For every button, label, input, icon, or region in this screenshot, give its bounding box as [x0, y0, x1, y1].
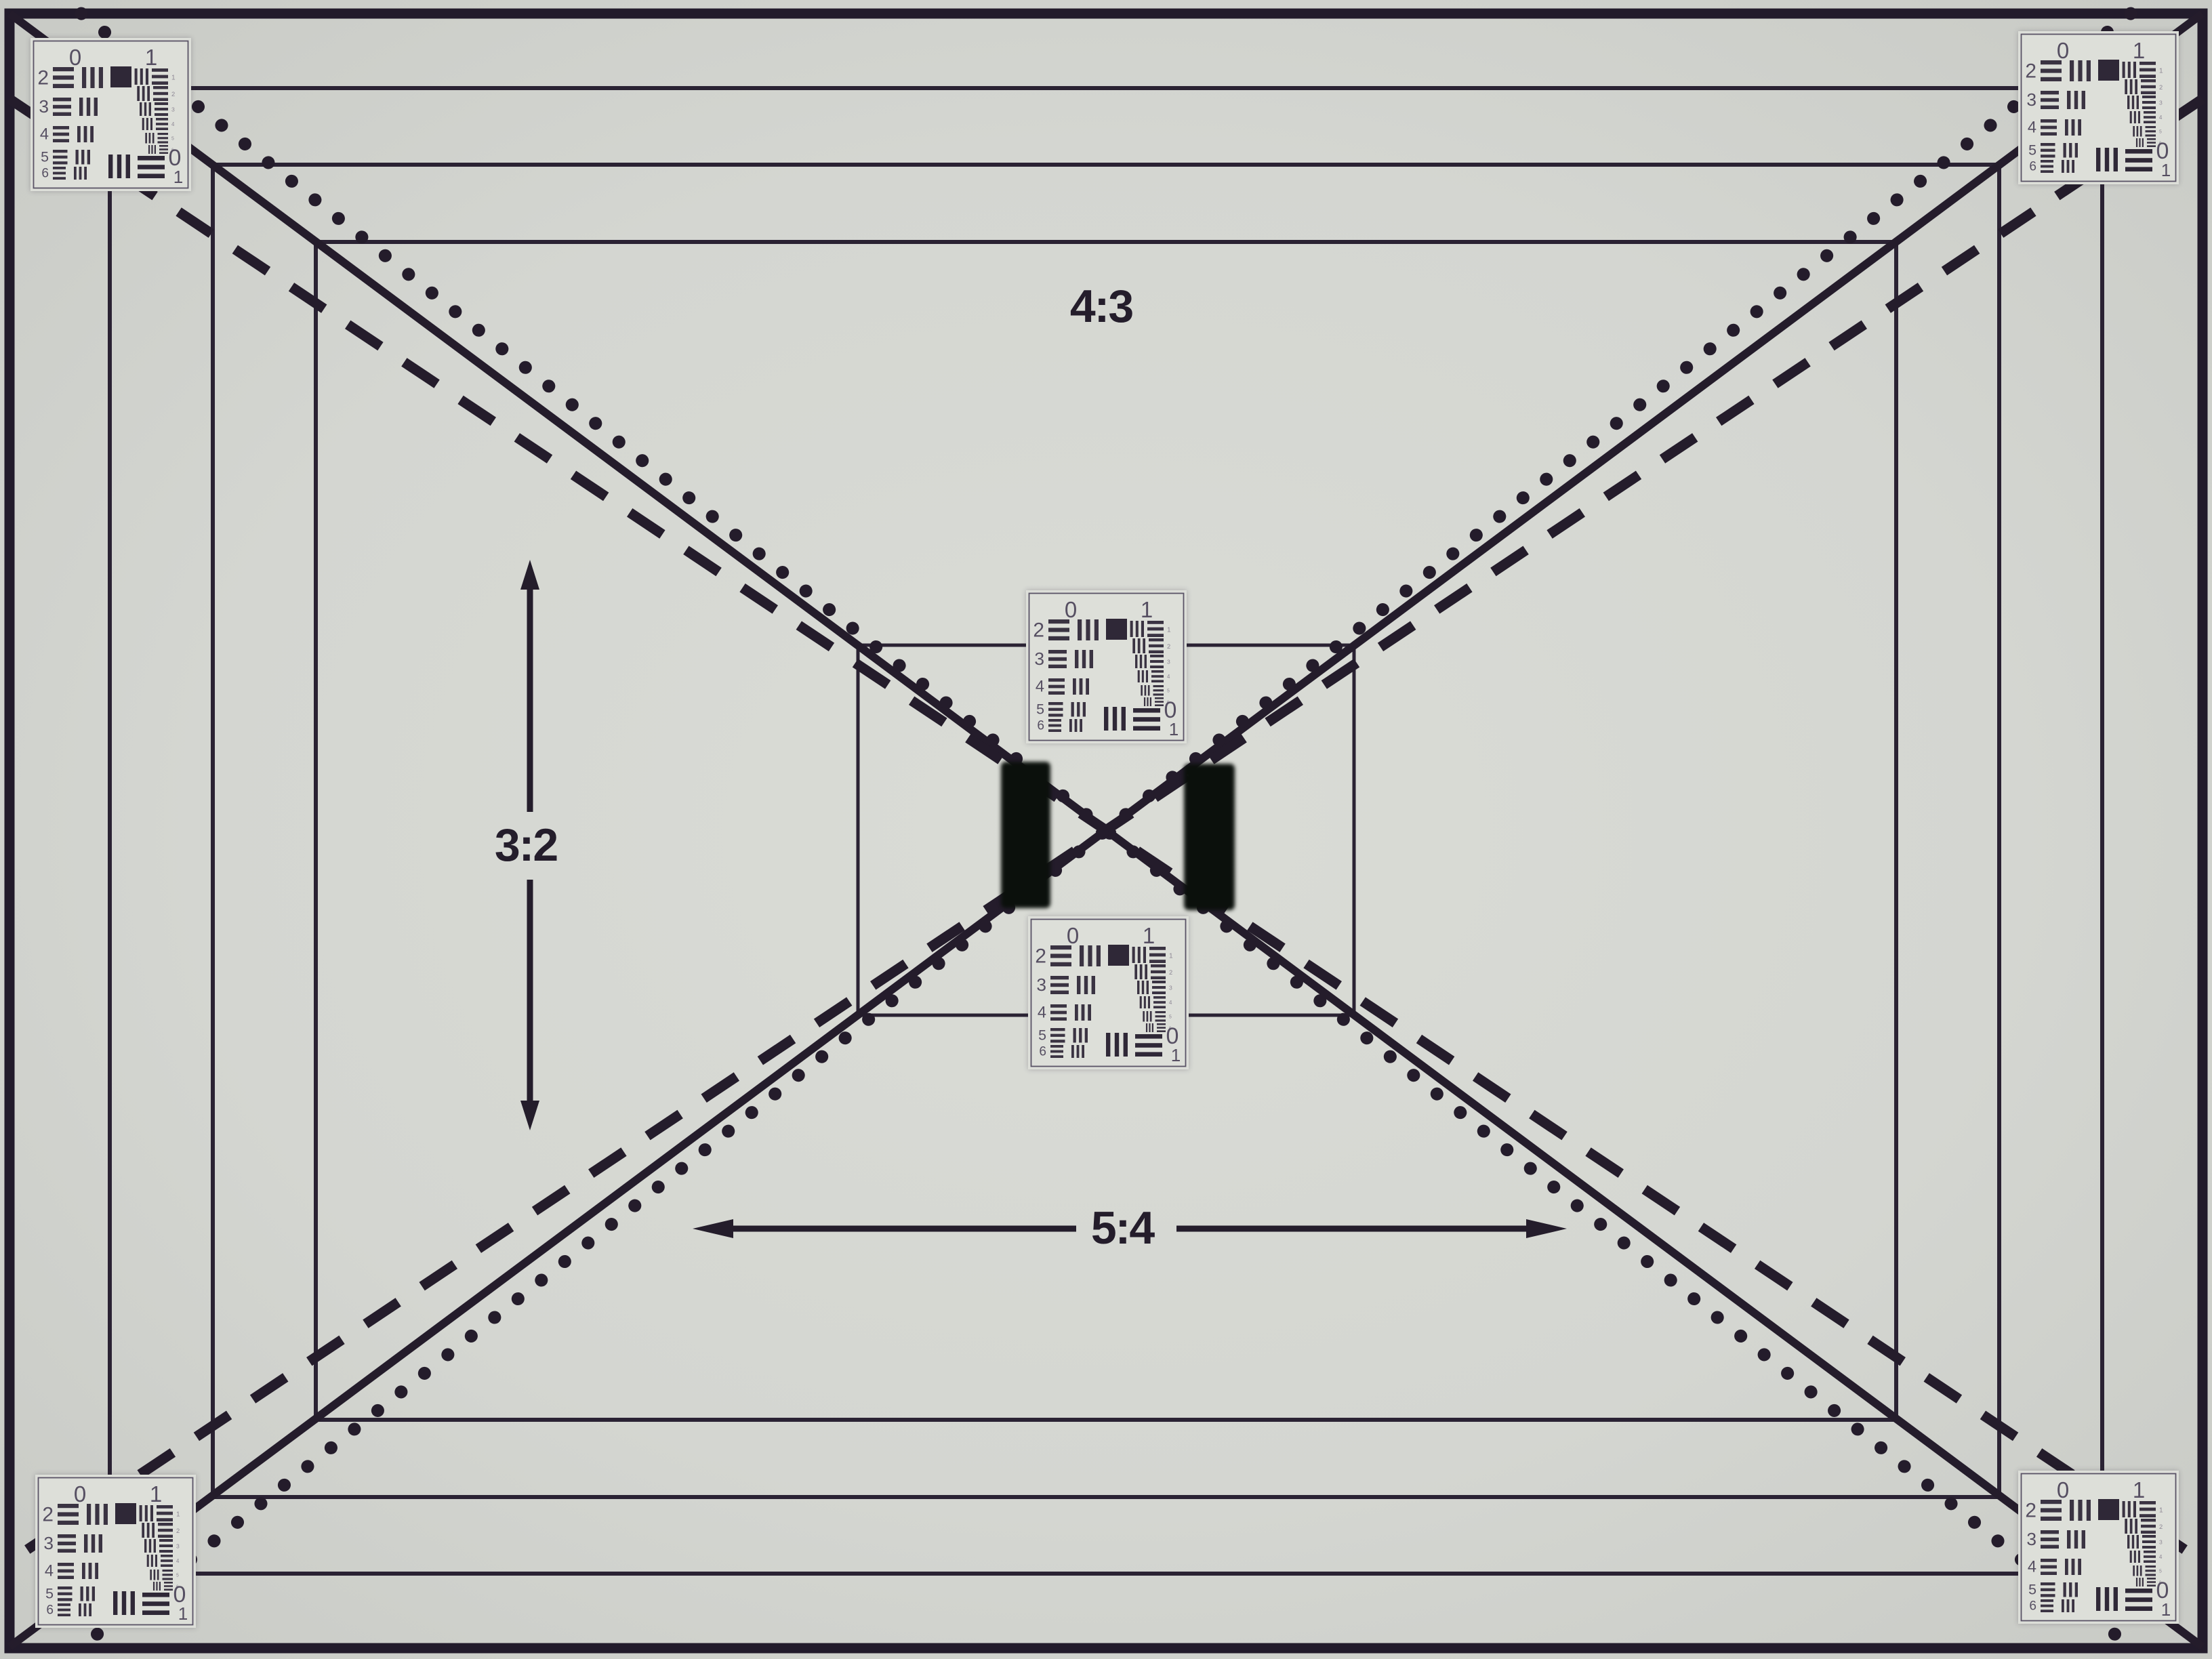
- target-bar: [2137, 1565, 2139, 1576]
- target-bar: [2041, 170, 2053, 173]
- target-bar: [2123, 1501, 2125, 1517]
- target-bar: [155, 108, 168, 110]
- target-bar: [1050, 1034, 1065, 1037]
- target-bar: [1122, 707, 1126, 731]
- target-bar: [2147, 138, 2156, 140]
- target-bar: [2141, 1531, 2156, 1534]
- target-bar: [84, 1534, 87, 1553]
- group-label-1: 1: [150, 1481, 162, 1507]
- target-bar: [1050, 1050, 1063, 1053]
- target-bar: [2135, 1519, 2137, 1534]
- target-bar: [1094, 619, 1099, 640]
- target-bar: [1149, 1023, 1150, 1032]
- target-bar: [1142, 670, 1144, 682]
- target-bar: [2041, 1559, 2057, 1562]
- corner-label-1: 1: [2161, 160, 2171, 180]
- corner-label-1: 1: [178, 1603, 188, 1624]
- target-bar: [1138, 670, 1140, 682]
- target-bar: [2133, 126, 2135, 137]
- target-bar: [1048, 691, 1065, 695]
- target-bar: [2069, 143, 2072, 158]
- target-bar: [2144, 1555, 2156, 1558]
- target-bar: [1050, 983, 1069, 987]
- target-bar: [1134, 964, 1137, 979]
- target-bar: [89, 1603, 91, 1616]
- element-number: 3: [2159, 100, 2163, 106]
- target-bar: [2041, 160, 2053, 163]
- target-bar: [1097, 945, 1101, 966]
- usaf-1951-pattern: 012345612345601: [35, 1475, 196, 1628]
- target-bar: [1077, 1045, 1080, 1058]
- element-number: 1: [2159, 67, 2163, 75]
- target-bar: [53, 84, 74, 88]
- target-bar: [152, 81, 168, 85]
- target-bar: [2142, 1540, 2156, 1543]
- target-bar: [159, 145, 168, 147]
- target-bar: [58, 1512, 79, 1516]
- row-number: 6: [41, 167, 49, 181]
- target-bar: [1050, 976, 1069, 979]
- target-bar: [1083, 702, 1086, 717]
- target-bar: [1157, 1030, 1166, 1032]
- target-bar: [1084, 976, 1088, 994]
- target-bar: [154, 1539, 156, 1553]
- target-bar: [2142, 1578, 2144, 1586]
- target-bar: [1151, 977, 1166, 979]
- target-bar: [2147, 1578, 2156, 1580]
- target-bar: [1077, 976, 1080, 994]
- element-number: 2: [1167, 643, 1170, 650]
- target-bar: [53, 177, 66, 180]
- target-bar: [2137, 96, 2139, 109]
- center-marker-bar-left: [1001, 762, 1050, 908]
- target-bar: [153, 92, 168, 95]
- row-number: 5: [45, 1586, 54, 1602]
- target-bar: [2075, 143, 2078, 158]
- target-bar: [2105, 148, 2109, 171]
- target-bar: [153, 86, 168, 89]
- target-bar: [1138, 638, 1141, 653]
- target-bar: [1149, 644, 1164, 647]
- target-bar: [161, 1564, 173, 1567]
- target-bar: [151, 1555, 153, 1567]
- target-bar: [1155, 704, 1164, 706]
- target-bar: [1085, 1028, 1088, 1043]
- target-bar: [145, 1505, 148, 1521]
- target-bar: [2041, 1565, 2057, 1569]
- target-bar: [1048, 628, 1069, 632]
- target-bar: [2078, 119, 2081, 136]
- target-bar: [126, 155, 130, 178]
- target-bar: [58, 1542, 76, 1545]
- target-bar: [138, 156, 165, 161]
- target-bar: [142, 1523, 144, 1538]
- target-bar: [1106, 1033, 1110, 1057]
- target-bar: [147, 1523, 150, 1538]
- usaf-1951-pattern: 012345612345601: [1028, 916, 1189, 1069]
- target-bar: [1082, 1004, 1085, 1021]
- target-bar: [1143, 947, 1146, 963]
- target-bar: [158, 1535, 173, 1538]
- target-bar: [1080, 719, 1082, 732]
- target-bar: [2142, 1535, 2156, 1538]
- target-bar: [155, 1555, 157, 1567]
- target-bar: [152, 1523, 155, 1538]
- target-bar: [1148, 685, 1150, 696]
- target-bar: [161, 1555, 173, 1557]
- target-bar: [79, 1603, 81, 1616]
- target-bar: [150, 118, 152, 130]
- target-bar: [2144, 121, 2156, 123]
- target-bar: [2146, 1565, 2156, 1568]
- target-bar: [1149, 651, 1164, 653]
- target-bar: [1155, 697, 1164, 699]
- target-bar: [58, 1534, 76, 1538]
- row-number: 5: [2028, 142, 2036, 159]
- element-number: 4: [2159, 115, 2163, 121]
- element-number: 5: [171, 137, 174, 142]
- target-bar: [90, 126, 94, 142]
- target-bar: [53, 139, 69, 142]
- target-bar: [2082, 91, 2085, 109]
- corner-label-1: 1: [1169, 719, 1179, 739]
- target-bar: [2128, 62, 2131, 78]
- target-bar: [81, 150, 84, 165]
- target-bar: [2142, 101, 2156, 104]
- target-bar: [2087, 60, 2091, 81]
- target-bar: [2074, 91, 2078, 109]
- target-bar: [1150, 655, 1164, 657]
- target-bar: [1086, 678, 1089, 695]
- target-bar: [1073, 678, 1076, 695]
- target-bar: [1155, 1019, 1166, 1021]
- row-number: 3: [39, 96, 49, 117]
- target-bar: [58, 1609, 70, 1612]
- target-bar: [1086, 619, 1090, 640]
- target-bar: [1153, 693, 1164, 695]
- target-bar: [2141, 1519, 2156, 1521]
- row-number: 2: [1035, 945, 1046, 967]
- usaf-target-center-lower: 012345612345601: [1028, 916, 1189, 1069]
- target-bar: [1048, 665, 1067, 668]
- target-bar: [157, 1570, 159, 1580]
- target-bar: [1151, 675, 1164, 678]
- target-bar: [1150, 665, 1164, 668]
- target-bar: [1113, 707, 1117, 731]
- target-bar: [2139, 138, 2140, 147]
- target-bar: [2132, 1535, 2134, 1549]
- target-bar: [148, 145, 150, 154]
- target-bar: [131, 1591, 135, 1615]
- target-bar: [2139, 62, 2156, 65]
- target-bar: [142, 1593, 169, 1597]
- element-number: 4: [2159, 1554, 2163, 1560]
- row-number: 3: [2026, 89, 2036, 110]
- target-bar: [155, 113, 168, 116]
- element-number: 4: [176, 1558, 180, 1564]
- target-bar: [1132, 638, 1135, 653]
- row-number: 6: [46, 1603, 54, 1618]
- target-bar: [2041, 155, 2055, 157]
- element-number: 1: [171, 74, 176, 81]
- target-bar: [2130, 111, 2132, 123]
- target-bar: [1090, 650, 1093, 668]
- target-bar: [164, 1589, 173, 1591]
- element-number: 3: [176, 1543, 180, 1550]
- target-bar: [1071, 702, 1074, 717]
- target-bar: [2127, 1535, 2129, 1549]
- target-bar: [1106, 619, 1127, 640]
- target-bar: [2125, 149, 2152, 154]
- target-bar: [156, 127, 168, 130]
- target-bar: [113, 1591, 117, 1615]
- target-bar: [1130, 621, 1133, 637]
- target-bar: [159, 1539, 173, 1542]
- target-bar: [1048, 719, 1061, 722]
- target-bar: [161, 1559, 173, 1562]
- target-bar: [1073, 1028, 1076, 1043]
- target-bar: [58, 1586, 73, 1589]
- target-bar: [87, 150, 90, 165]
- element-number: 2: [176, 1528, 180, 1534]
- target-bar: [156, 1582, 157, 1591]
- target-bar: [1155, 1011, 1166, 1013]
- target-bar: [2041, 1538, 2059, 1541]
- target-bar: [2078, 60, 2082, 81]
- target-bar: [1146, 1023, 1147, 1032]
- target-bar: [2130, 1519, 2133, 1534]
- row-number: 6: [1039, 1045, 1046, 1059]
- target-bar: [1050, 945, 1071, 949]
- target-bar: [2096, 1587, 2100, 1611]
- target-bar: [2142, 96, 2156, 98]
- target-bar: [150, 1570, 152, 1580]
- target-bar: [1079, 1028, 1082, 1043]
- target-bar: [2041, 143, 2055, 146]
- target-bar: [1146, 670, 1148, 682]
- target-bar: [2125, 1519, 2127, 1534]
- target-bar: [1048, 708, 1063, 711]
- target-bar: [58, 1570, 74, 1573]
- target-bar: [137, 86, 140, 101]
- target-bar: [164, 1582, 173, 1584]
- target-bar: [2067, 1599, 2070, 1612]
- target-bar: [1048, 729, 1061, 732]
- target-bar: [2114, 1587, 2118, 1611]
- target-bar: [2041, 1610, 2053, 1612]
- target-bar: [2125, 1589, 2152, 1593]
- element-number: 2: [171, 91, 175, 98]
- target-bar: [1050, 1055, 1063, 1058]
- target-bar: [53, 75, 74, 79]
- target-bar: [1136, 621, 1139, 637]
- row-number: 5: [2028, 1582, 2036, 1598]
- target-bar: [1080, 945, 1084, 966]
- target-bar: [1135, 1043, 1162, 1048]
- target-bar: [2141, 85, 2156, 88]
- target-bar: [122, 1591, 126, 1615]
- target-bar: [2062, 1599, 2064, 1612]
- target-bar: [1115, 1033, 1119, 1057]
- row-number: 3: [1034, 649, 1044, 669]
- element-number: 1: [1169, 952, 1173, 960]
- target-bar: [157, 1512, 173, 1515]
- target-bar: [2041, 1545, 2059, 1549]
- group-label-0: 0: [2057, 1477, 2069, 1502]
- target-bar: [1152, 981, 1166, 983]
- target-bar: [2135, 79, 2137, 94]
- target-bar: [1075, 719, 1078, 732]
- target-bar: [159, 1544, 173, 1547]
- target-bar: [135, 68, 138, 85]
- target-bar: [2072, 119, 2075, 136]
- target-bar: [1048, 702, 1063, 705]
- target-bar: [2096, 148, 2100, 171]
- target-bar: [2147, 142, 2156, 144]
- target-bar: [84, 126, 87, 142]
- target-bar: [2041, 119, 2057, 123]
- target-bar: [89, 1563, 92, 1579]
- target-bar: [1153, 996, 1166, 999]
- target-bar: [2132, 96, 2134, 109]
- usaf-1951-pattern: 012345612345601: [1026, 590, 1187, 743]
- target-bar: [140, 68, 143, 85]
- target-bar: [2041, 1572, 2057, 1575]
- target-bar: [158, 1529, 173, 1532]
- target-bar: [152, 133, 155, 144]
- target-bar: [2138, 1551, 2140, 1563]
- usaf-target-top-right: 012345612345601: [2018, 31, 2179, 184]
- row-number: 2: [1033, 619, 1044, 641]
- target-bar: [82, 1563, 85, 1579]
- target-bar: [138, 173, 165, 178]
- target-bar: [2137, 126, 2139, 137]
- element-number: 3: [1169, 985, 1172, 991]
- target-bar: [2070, 1500, 2074, 1521]
- row-number: 4: [45, 1563, 54, 1580]
- target-bar: [1069, 719, 1072, 732]
- target-bar: [2067, 160, 2070, 173]
- row-number: 2: [2025, 60, 2036, 82]
- target-bar: [142, 1601, 169, 1606]
- target-bar: [115, 1503, 136, 1524]
- element-number: 4: [1167, 674, 1170, 680]
- element-number: 3: [2159, 1539, 2163, 1546]
- target-bar: [1157, 1027, 1166, 1029]
- target-bar: [2147, 1584, 2156, 1586]
- target-bar: [1149, 960, 1166, 963]
- target-bar: [2041, 1517, 2062, 1521]
- target-bar: [1124, 1033, 1128, 1057]
- target-bar: [2144, 111, 2156, 114]
- target-bar: [2072, 160, 2074, 173]
- target-bar: [146, 118, 148, 130]
- target-bar: [159, 152, 168, 154]
- target-bar: [1150, 660, 1164, 663]
- target-bar: [1147, 697, 1148, 706]
- target-bar: [1151, 970, 1166, 973]
- target-bar: [58, 1563, 74, 1566]
- target-bar: [53, 150, 68, 152]
- target-bar: [163, 1578, 173, 1580]
- target-bar: [152, 75, 168, 79]
- target-bar: [92, 1586, 95, 1601]
- target-bar: [154, 1570, 156, 1580]
- target-bar: [1048, 619, 1069, 623]
- element-number: 2: [2159, 84, 2163, 91]
- target-bar: [1153, 689, 1164, 691]
- target-bar: [1138, 947, 1141, 963]
- target-bar: [1048, 636, 1069, 640]
- row-number: 2: [2025, 1499, 2036, 1521]
- target-bar: [1050, 954, 1071, 958]
- element-number: 3: [171, 106, 175, 113]
- target-bar: [2146, 1570, 2156, 1572]
- target-bar: [2087, 1500, 2091, 1521]
- element-number: 1: [176, 1511, 180, 1518]
- target-bar: [163, 1570, 173, 1572]
- target-bar: [142, 118, 144, 130]
- target-bar: [1050, 1004, 1067, 1008]
- target-bar: [2041, 1508, 2062, 1512]
- target-bar: [1141, 621, 1144, 637]
- target-bar: [2125, 167, 2152, 171]
- aspect-label-5-4: 5:4: [1091, 1202, 1153, 1254]
- target-bar: [1048, 657, 1067, 661]
- chart-geometry: [0, 0, 2212, 1659]
- usaf-target-bottom-left: 012345612345601: [35, 1475, 196, 1628]
- target-bar: [157, 1518, 173, 1521]
- target-bar: [2041, 126, 2057, 129]
- target-bar: [1149, 954, 1166, 957]
- usaf-1951-pattern: 012345612345601: [2018, 31, 2179, 184]
- target-bar: [53, 133, 69, 136]
- element-number: 1: [1167, 626, 1171, 634]
- target-bar: [1152, 1023, 1153, 1032]
- target-bar: [1050, 991, 1069, 994]
- usaf-target-bottom-right: 012345612345601: [2018, 1471, 2179, 1624]
- group-label-1: 1: [1141, 597, 1153, 622]
- element-number: 5: [2159, 130, 2162, 135]
- target-bar: [2041, 1594, 2055, 1597]
- target-bar: [1153, 1001, 1166, 1004]
- target-bar: [2041, 60, 2062, 64]
- target-bar: [2139, 1508, 2156, 1511]
- target-bar: [2041, 77, 2062, 81]
- target-bar: [79, 167, 82, 180]
- target-bar: [158, 133, 169, 135]
- target-bar: [1088, 945, 1092, 966]
- target-bar: [95, 1563, 98, 1579]
- target-bar: [2144, 116, 2156, 119]
- target-bar: [1150, 697, 1151, 706]
- target-bar: [104, 1504, 108, 1525]
- target-bar: [1137, 981, 1139, 994]
- element-number: 5: [1169, 1015, 1172, 1020]
- target-bar: [2114, 148, 2118, 171]
- target-bar: [2134, 111, 2136, 123]
- target-bar: [1048, 724, 1061, 727]
- target-bar: [1075, 1004, 1078, 1021]
- target-bar: [2041, 91, 2059, 94]
- target-bar: [1152, 986, 1166, 989]
- target-bar: [2065, 1559, 2068, 1575]
- target-bar: [2147, 1581, 2156, 1583]
- target-bar: [158, 141, 169, 143]
- target-bar: [1075, 650, 1078, 668]
- row-number: 4: [1038, 1004, 1046, 1022]
- row-number: 6: [2029, 160, 2036, 174]
